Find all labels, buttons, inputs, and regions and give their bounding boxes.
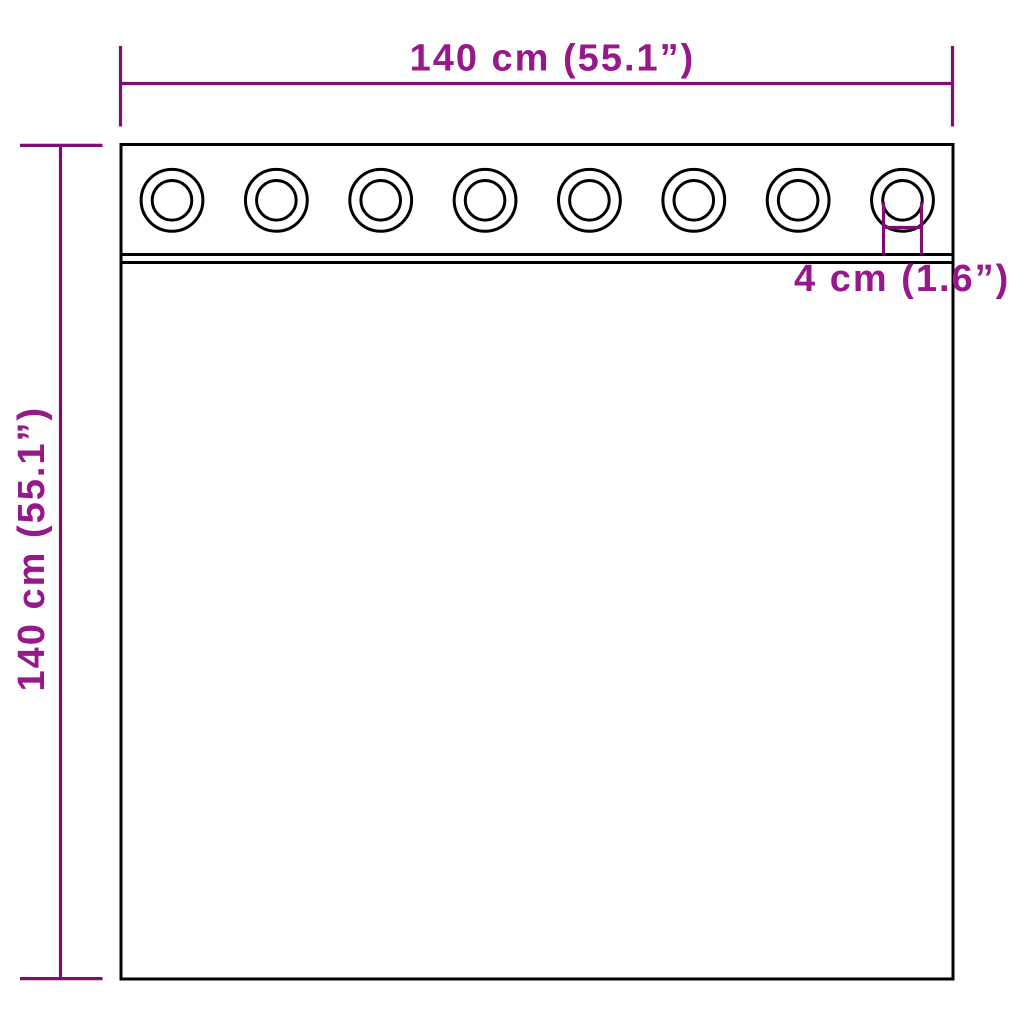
svg-text:140 cm (55.1”): 140 cm (55.1”)	[11, 406, 53, 692]
svg-text:4 cm (1.6”): 4 cm (1.6”)	[794, 258, 1010, 300]
svg-text:140 cm (55.1”): 140 cm (55.1”)	[410, 38, 696, 80]
